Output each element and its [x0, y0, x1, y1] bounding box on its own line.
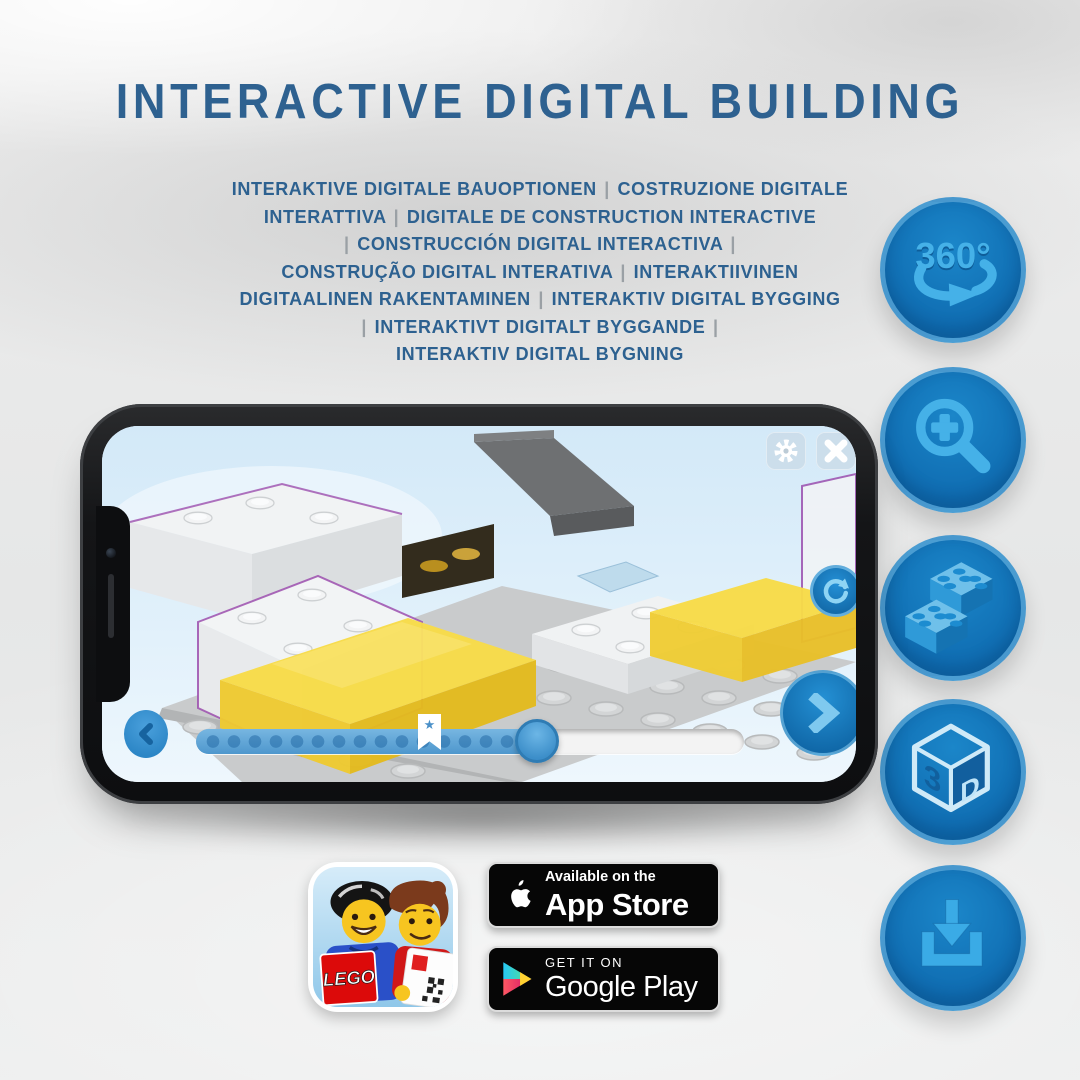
close-button[interactable] [816, 432, 856, 470]
apple-icon [489, 874, 545, 916]
rotate-button[interactable] [810, 565, 856, 617]
google-play-tagline: GET IT ON [545, 956, 698, 969]
chevron-left-icon [137, 723, 155, 745]
camera-dot [106, 548, 116, 558]
rotate-icon [821, 576, 851, 606]
feature-3d-view: 3 D [880, 699, 1026, 845]
next-step-button[interactable] [780, 670, 856, 756]
slider-fill [196, 729, 548, 754]
settings-button[interactable] [766, 432, 806, 470]
chevron-right-icon [806, 693, 840, 733]
google-play-name: Google Play [545, 973, 698, 1002]
360-rotation-icon: 360° 360° [901, 218, 1005, 322]
google-play-badge[interactable]: GET IT ON Google Play [487, 946, 720, 1012]
phone-notch [96, 506, 130, 702]
speaker-slit [108, 574, 114, 638]
page: INTERACTIVE DIGITAL BUILDING INTERAKTIVE… [0, 0, 1080, 1080]
gear-icon [773, 438, 799, 464]
lego-app-icon[interactable]: LEGO [308, 862, 458, 1012]
svg-text:360°: 360° [915, 235, 990, 276]
back-button[interactable] [124, 710, 168, 758]
feature-360-rotation: 360° 360° [880, 197, 1026, 343]
zoom-in-icon [901, 388, 1005, 492]
feature-zoom-in [880, 367, 1026, 513]
app-store-name: App Store [545, 889, 689, 920]
phone-mockup: ★ [80, 404, 878, 804]
build-progress-slider[interactable] [196, 729, 744, 754]
lego-app-icon-art: LEGO [313, 867, 453, 1007]
app-store-badge[interactable]: Available on the App Store [487, 862, 720, 928]
bricks-icon [901, 556, 1005, 660]
google-play-icon [489, 958, 545, 1000]
subtitle-line: INTERAKTIV DIGITAL BYGNING [0, 341, 1080, 369]
app-store-tagline: Available on the [545, 870, 689, 885]
lego-logo: LEGO [320, 951, 378, 1005]
feature-brick-building [880, 535, 1026, 681]
subtitle-line: INTERAKTIVE DIGITALE BAUOPTIONEN | COSTR… [0, 176, 1080, 204]
feature-download [880, 865, 1026, 1011]
slider-handle[interactable] [515, 719, 559, 763]
page-title: INTERACTIVE DIGITAL BUILDING [43, 74, 1037, 130]
download-icon [901, 886, 1005, 990]
close-icon [824, 439, 848, 463]
3d-cube-icon: 3 D [901, 720, 1005, 824]
svg-text:LEGO: LEGO [322, 966, 375, 991]
phone-screen: ★ [102, 426, 856, 782]
